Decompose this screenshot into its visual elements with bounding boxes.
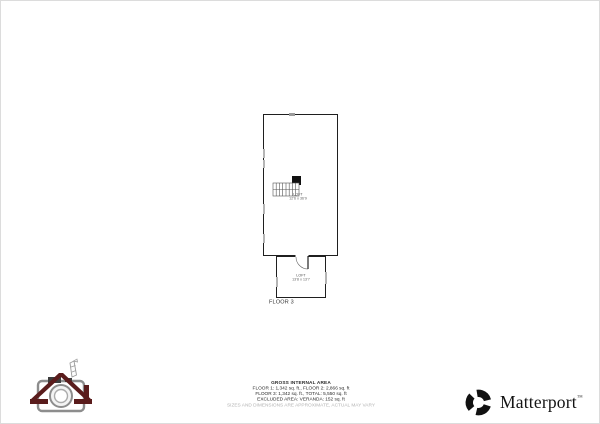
entry-room-dimensions: 13'8 x 13'7 [276,278,326,282]
entry-room-label: LOFT 13'8 x 13'7 [276,274,326,282]
trademark-symbol: ™ [577,395,583,401]
window-mark [263,160,265,168]
matterport-wordmark: Matterport™ [500,392,583,413]
area-summary: GROSS INTERNAL AREA FLOOR 1: 1,342 sq. f… [201,380,401,408]
main-room-label: LOFT 12'6 x 36'9 [273,193,323,201]
matterport-wordmark-text: Matterport [500,392,577,412]
window-mark [263,149,265,158]
floorplan-main-room-outline [263,114,338,256]
floor-label: FLOOR 3 [269,299,294,305]
matterport-pinwheel-icon [463,387,494,418]
window-mark [263,234,265,243]
window-mark [263,204,265,214]
wall-tick [289,113,295,116]
main-room-dimensions: 12'6 x 36'9 [273,197,323,201]
floorplan-page: LOFT 12'6 x 36'9 LOFT 13'8 x 13'7 FLOOR … [0,0,600,424]
summary-line: EXCLUDED AREA: VERANDA: 152 sq. ft [201,397,401,403]
camera-icon [38,377,84,411]
lighthouse-icon [70,359,78,377]
photographer-logo [28,358,98,418]
matterport-logo: Matterport™ [463,385,583,419]
summary-disclaimer: SIZES AND DIMENSIONS ARE APPROXIMATE, AC… [201,403,401,409]
floorplan-solid-block [292,176,301,185]
